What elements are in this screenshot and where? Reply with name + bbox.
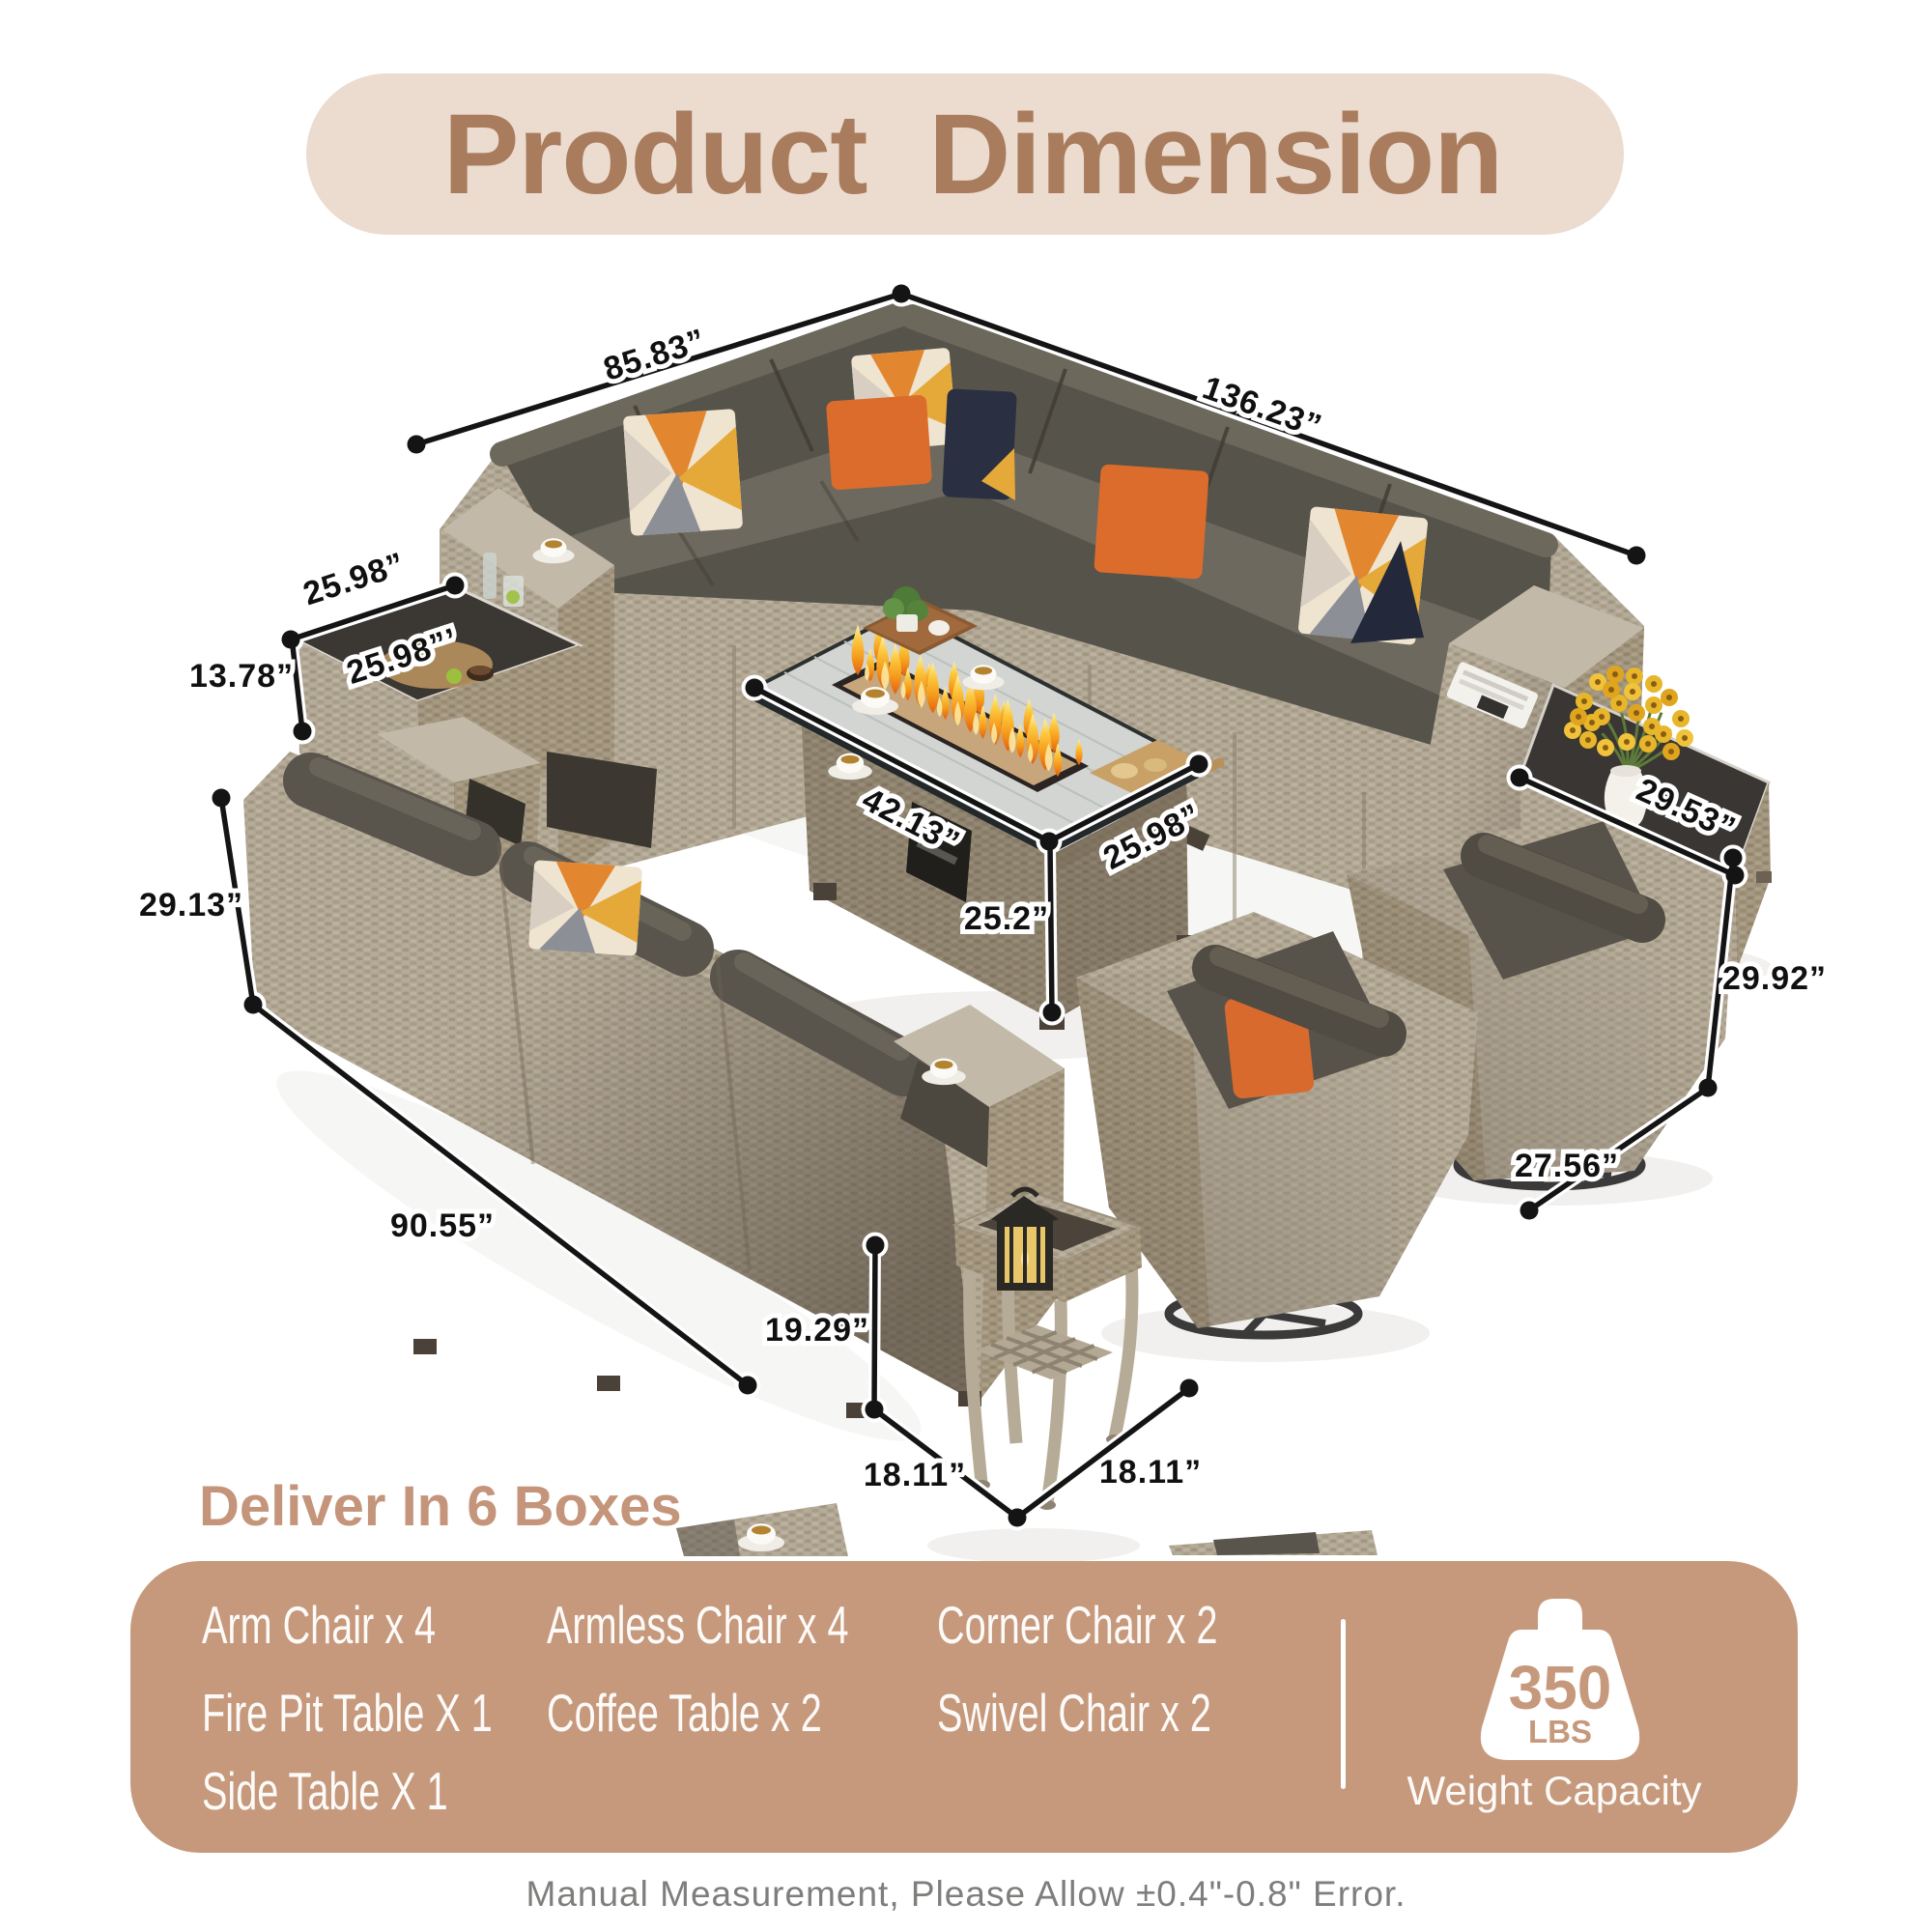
svg-text:350: 350 [1509, 1653, 1612, 1722]
svg-text:LBS: LBS [1528, 1714, 1592, 1749]
svg-text:Weight Capacity: Weight Capacity [1406, 1768, 1701, 1813]
